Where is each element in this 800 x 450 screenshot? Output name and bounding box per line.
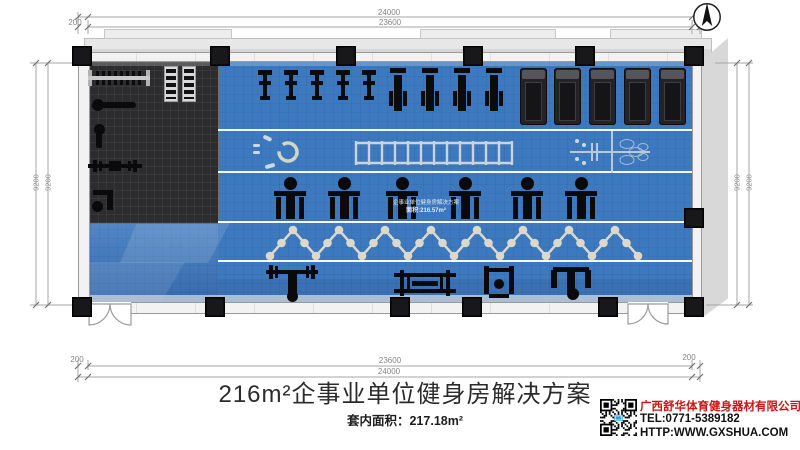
dim-top-total: 24000 xyxy=(78,8,700,17)
structural-column xyxy=(462,297,482,317)
company-name: 广西舒华体育健身器材有限公司 xyxy=(640,398,800,414)
structural-column xyxy=(390,297,410,317)
company-tel: TEL:0771-5389182 xyxy=(640,413,740,425)
structural-column xyxy=(72,297,92,317)
dim-right-outer: 9200 xyxy=(745,163,754,203)
dim-bottom-inner: 23600 xyxy=(88,356,692,365)
dim-bottom-offset-left: 200 xyxy=(64,355,90,364)
dim-left-inner: 9200 xyxy=(44,163,53,203)
plan-subtitle: 套内面积：217.18m² xyxy=(170,410,640,429)
qr-code xyxy=(600,399,637,436)
dim-left-outer: 9200 xyxy=(32,163,41,203)
structural-column xyxy=(684,208,704,228)
company-url: HTTP:WWW.GXSHUA.COM xyxy=(640,427,788,439)
structural-column xyxy=(684,46,704,66)
structural-column xyxy=(575,46,595,66)
dim-top-inner: 23600 xyxy=(88,18,692,27)
structural-column xyxy=(463,46,483,66)
structural-column xyxy=(205,297,225,317)
structural-column xyxy=(72,46,92,66)
structural-column xyxy=(210,46,230,66)
structural-column xyxy=(684,297,704,317)
floor-plan-canvas: 企事业单位健身房解决方案 面积:216.57m² 24000 23600 200… xyxy=(0,0,800,450)
dim-bottom-offset-right: 200 xyxy=(676,353,702,362)
structural-column xyxy=(598,297,618,317)
dim-top-offset: 200 xyxy=(62,18,88,27)
plan-title: 216m²企事业单位健身房解决方案 xyxy=(170,374,640,409)
north-compass-icon xyxy=(688,0,728,36)
dim-right-inner: 9200 xyxy=(733,163,742,203)
structural-column xyxy=(336,46,356,66)
